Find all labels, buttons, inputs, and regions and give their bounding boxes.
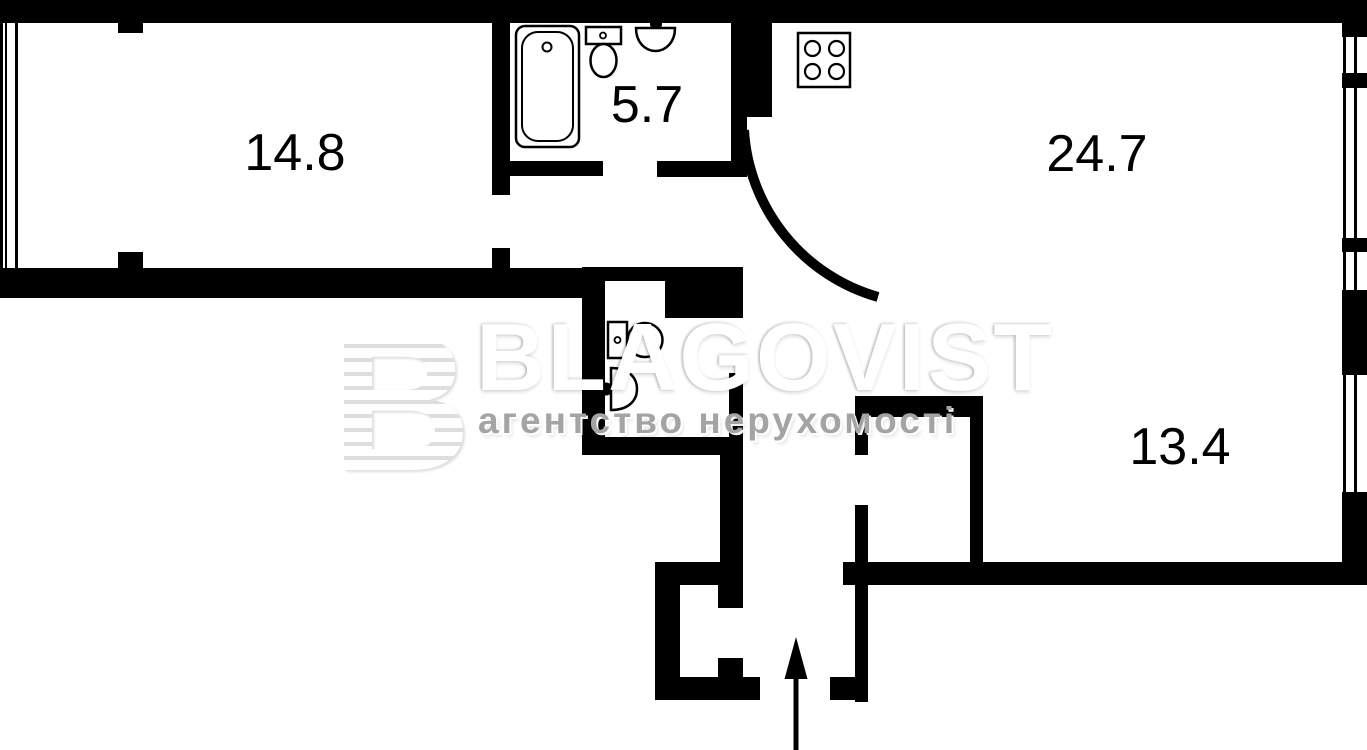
room-area-label-right: 13.4	[1129, 421, 1230, 473]
room-area-label-bathroom: 5.7	[611, 79, 683, 131]
floor-plan: 14.8 5.7 24.7 13.4 B BLAGOVIST агентство…	[0, 0, 1367, 750]
labels-layer: 14.8 5.7 24.7 13.4	[0, 0, 1367, 750]
room-area-label-kitchen: 24.7	[1046, 128, 1147, 180]
room-area-label-left: 14.8	[244, 127, 345, 179]
